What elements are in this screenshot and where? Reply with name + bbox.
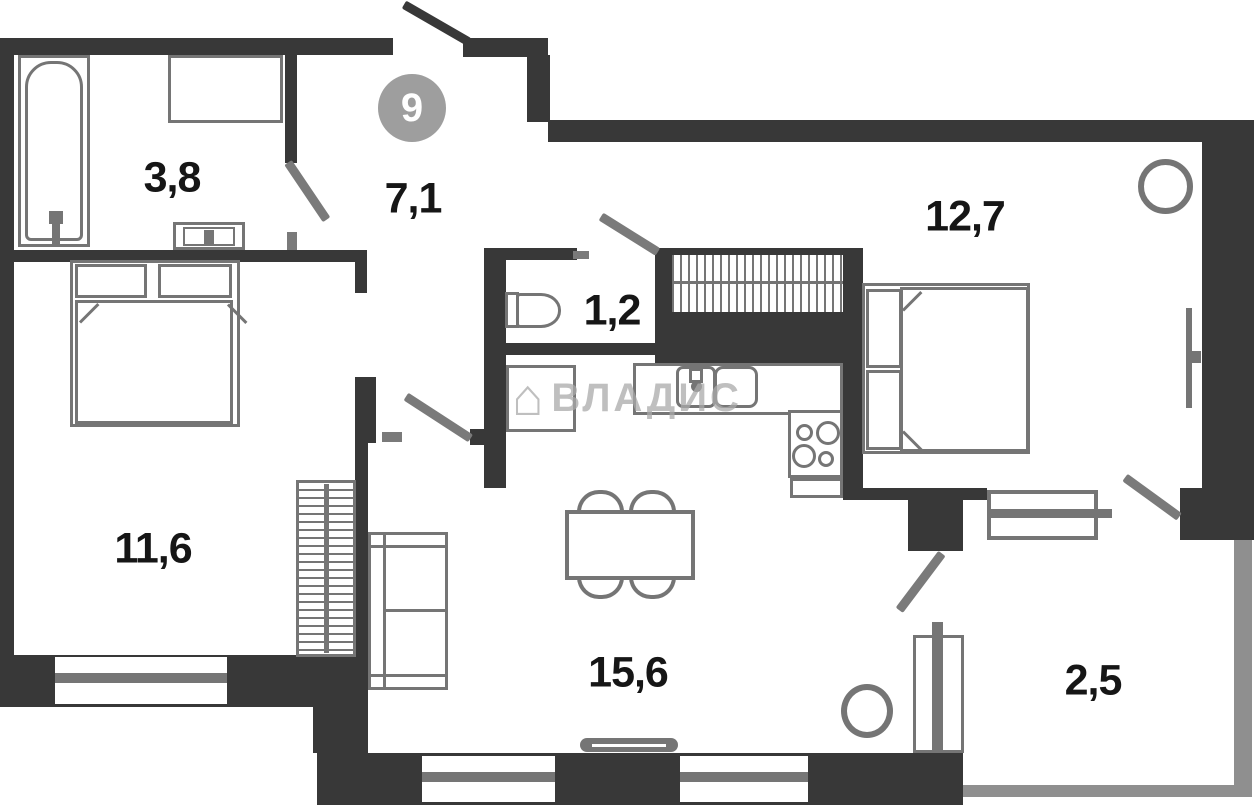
pillow: [75, 264, 147, 298]
entrance-door: [402, 1, 471, 46]
window-glass-line: [55, 673, 227, 683]
wall: [484, 248, 506, 488]
unit-number-badge: 9: [378, 74, 446, 142]
bathroom-door: [284, 160, 330, 222]
wall: [355, 250, 367, 293]
floor-plan: ⌂ ВЛАДИС: [0, 0, 1254, 805]
living-balcony-door: [896, 551, 946, 613]
room-label-bedroom-right: 12,7: [925, 193, 1005, 242]
pillow: [158, 264, 232, 298]
chair: [629, 577, 676, 599]
drying-rack-rail: [932, 622, 943, 753]
burner: [792, 444, 816, 468]
corridor-door: [404, 393, 473, 442]
wall: [548, 120, 1254, 142]
lamp-ring: [841, 684, 893, 738]
wall: [317, 753, 963, 805]
room-label-wc: 1,2: [584, 287, 641, 336]
balcony-window-sill: [987, 509, 1112, 518]
wall: [1202, 120, 1254, 490]
kitchen-door: [599, 213, 661, 256]
wall: [285, 53, 297, 163]
toilet-bowl: [516, 293, 561, 328]
door-jamb: [573, 251, 589, 259]
wall: [484, 343, 658, 355]
chair: [629, 490, 676, 512]
mattress: [900, 287, 1029, 452]
sofa-armrest-line: [368, 545, 448, 548]
wardrobe-midline: [672, 281, 843, 284]
wall-tv-mount: [1192, 351, 1201, 363]
bedroom-balcony-door: [1122, 474, 1181, 521]
wall: [0, 38, 14, 707]
room-label-balcony: 2,5: [1065, 657, 1122, 706]
watermark-text: ВЛАДИС: [551, 378, 741, 418]
sofa-cushion-line: [383, 609, 448, 612]
room-label-bathroom: 3,8: [144, 154, 201, 203]
door-jamb: [382, 432, 402, 442]
window-glass-line: [422, 772, 555, 782]
pillow: [866, 289, 902, 368]
door-jamb: [287, 232, 297, 250]
room-label-living-room: 15,6: [588, 649, 668, 698]
wall: [367, 377, 376, 443]
mattress: [75, 300, 233, 424]
pillow: [866, 370, 902, 450]
dining-table: [565, 510, 695, 580]
wall-bars-rail: [324, 484, 329, 653]
burner: [818, 451, 834, 467]
wall: [1180, 488, 1254, 540]
house-icon: ⌂: [512, 378, 543, 418]
balcony-wall: [963, 785, 1252, 797]
wall: [843, 248, 863, 500]
wall: [484, 248, 577, 260]
chair: [577, 490, 624, 512]
burner: [816, 421, 840, 445]
room-label-bedroom-left: 11,6: [114, 525, 191, 574]
tv-console-line: [592, 744, 666, 747]
stove: [788, 410, 843, 478]
wall: [527, 55, 550, 122]
wall: [0, 38, 393, 55]
ceiling-lamp-ring: [1138, 159, 1193, 214]
burner: [796, 424, 813, 441]
balcony-wall: [1234, 540, 1252, 797]
window-glass-line: [680, 772, 808, 782]
wall: [908, 500, 963, 551]
sofa-armrest-line: [368, 674, 448, 677]
room-label-hallway: 7,1: [385, 175, 442, 224]
bathtub-tap: [52, 224, 60, 245]
vanity-tap: [204, 230, 214, 245]
bathtub-tap: [49, 211, 63, 224]
wall: [863, 488, 987, 500]
wall: [313, 707, 367, 753]
oven: [790, 478, 843, 498]
washing-machine: [168, 55, 283, 123]
chair: [577, 577, 624, 599]
watermark: ⌂ ВЛАДИС: [512, 378, 742, 418]
